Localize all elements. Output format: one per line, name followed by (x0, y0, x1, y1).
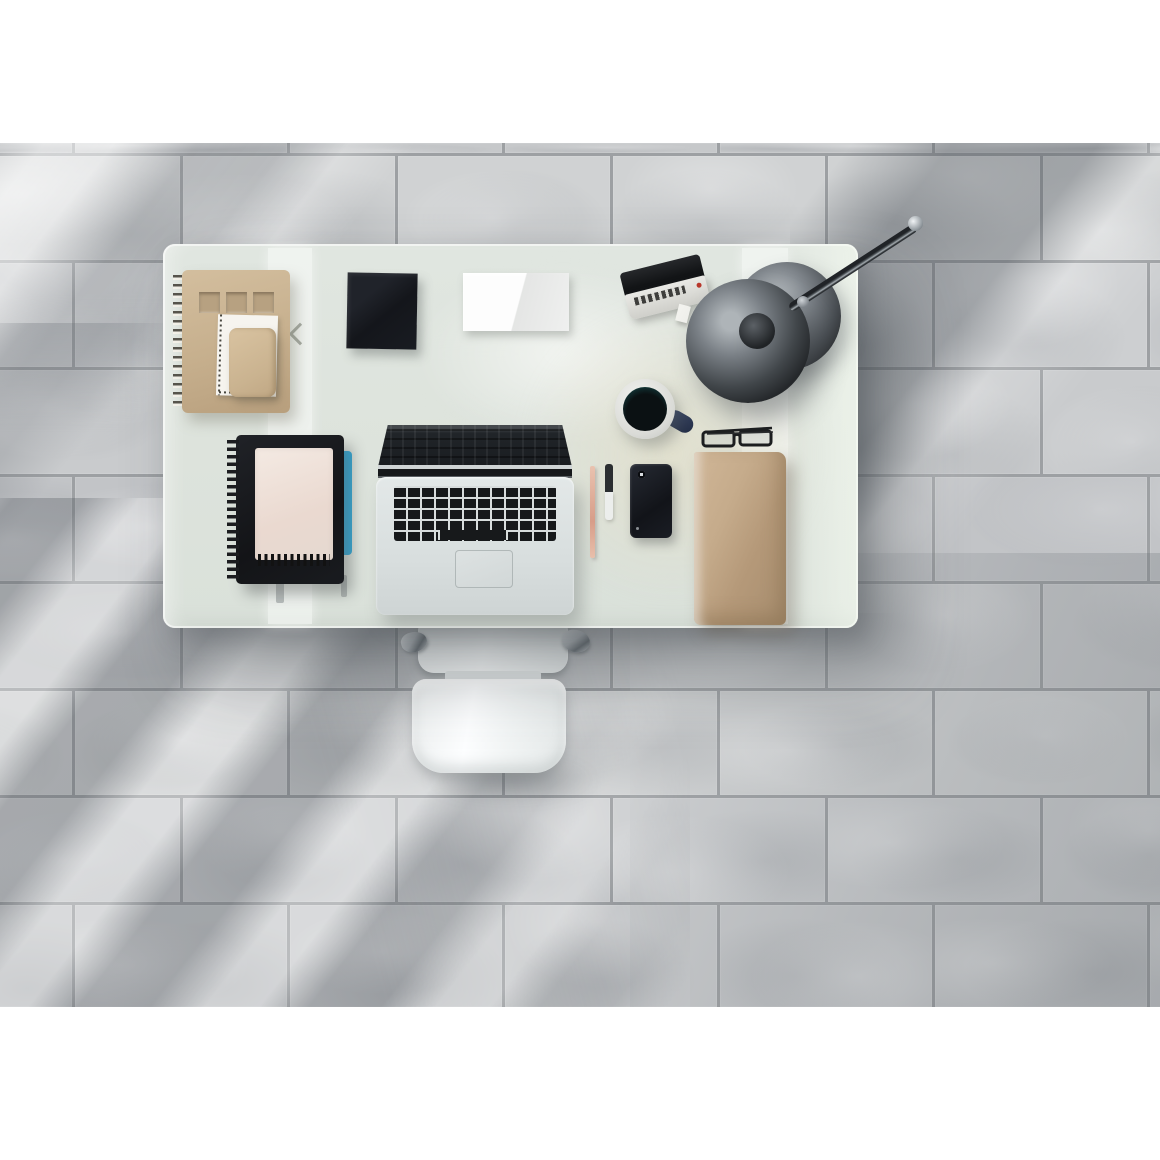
pen-body (605, 464, 613, 494)
cover-window (199, 292, 220, 313)
lamp-wingnut (797, 296, 809, 308)
desk-frame-fitting (276, 581, 284, 603)
lamp-arm-tip (908, 216, 923, 231)
notepad-coil (258, 554, 330, 566)
cream-notepad (255, 448, 333, 560)
glasses-bridge (734, 435, 740, 437)
black-napkin (346, 272, 417, 349)
mini-kraft-notebook (229, 328, 276, 397)
lamp-socket-hub (739, 313, 775, 349)
kraft-paper-folder (694, 452, 786, 625)
pen-cap (605, 492, 613, 520)
laptop-screen-lid (378, 425, 572, 467)
laptop-trackpad (455, 550, 513, 588)
chair-backrest (418, 621, 568, 673)
smartphone (630, 464, 672, 538)
mug-coffee (623, 387, 667, 431)
phone-detail-dot (636, 527, 639, 530)
office-photo (0, 143, 1160, 1007)
phone-camera-lens (638, 471, 645, 478)
spiral-coil (227, 440, 239, 580)
camera-red-dot (696, 282, 702, 288)
cover-window (226, 292, 247, 313)
cover-window (253, 292, 274, 313)
reading-glasses (700, 424, 778, 450)
folded-white-paper (463, 273, 569, 331)
chair-seat (412, 679, 566, 773)
paper-fold-crease (463, 273, 569, 331)
photo-canvas (0, 0, 1160, 1160)
rose-gold-pen (590, 466, 595, 558)
laptop-spacebar (438, 530, 508, 540)
